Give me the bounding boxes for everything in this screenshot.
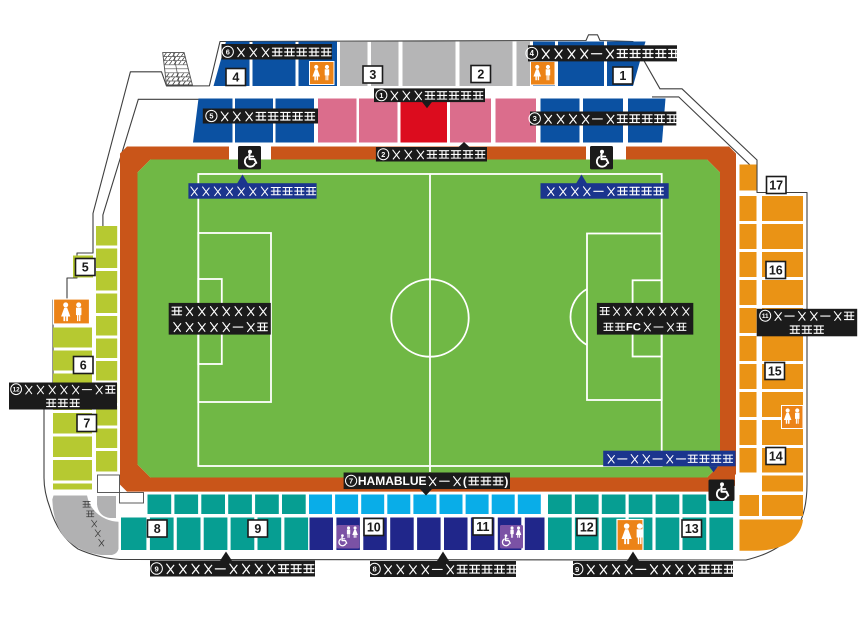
svg-text:12: 12	[13, 387, 21, 394]
svg-text:7: 7	[349, 477, 353, 486]
svg-text:15: 15	[768, 365, 782, 379]
svg-text:3: 3	[533, 114, 537, 123]
svg-text:9: 9	[575, 565, 579, 574]
svg-text:4: 4	[530, 49, 535, 58]
svg-text:(: (	[463, 474, 467, 488]
svg-text:6: 6	[80, 359, 87, 373]
svg-text:17: 17	[769, 179, 783, 193]
svg-text:4: 4	[232, 71, 239, 85]
svg-text:10: 10	[367, 521, 381, 535]
svg-text:12: 12	[580, 521, 594, 535]
svg-text:HAMABLUE: HAMABLUE	[358, 474, 427, 488]
svg-text:): )	[504, 474, 508, 488]
svg-text:11: 11	[476, 520, 489, 534]
svg-text:8: 8	[154, 522, 161, 536]
svg-text:5: 5	[209, 112, 213, 121]
svg-text:1: 1	[619, 69, 626, 83]
svg-text:14: 14	[769, 450, 783, 464]
svg-text:2: 2	[477, 68, 484, 82]
svg-text:8: 8	[372, 565, 376, 574]
svg-text:11: 11	[762, 313, 769, 320]
svg-text:3: 3	[369, 68, 376, 82]
svg-text:1: 1	[379, 91, 383, 100]
svg-text:9: 9	[154, 564, 158, 573]
svg-text:5: 5	[82, 261, 89, 275]
svg-text:16: 16	[769, 264, 783, 278]
svg-text:7: 7	[83, 417, 90, 431]
svg-text:13: 13	[685, 522, 699, 536]
svg-text:6: 6	[226, 47, 230, 56]
svg-text:2: 2	[381, 150, 385, 159]
svg-text:FC: FC	[626, 322, 641, 334]
svg-text:9: 9	[254, 522, 261, 536]
